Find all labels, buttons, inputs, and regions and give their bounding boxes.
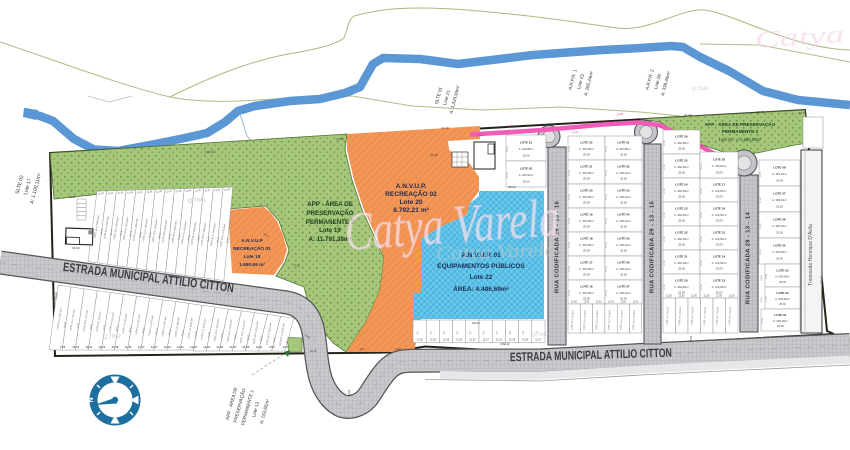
svg-text:A: 300,00m²: A: 300,00m² — [616, 171, 631, 175]
svg-text:12,00: 12,00 — [766, 296, 768, 302]
svg-text:9,51: 9,51 — [359, 347, 365, 351]
svg-text:Lote 22: Lote 22 — [470, 274, 493, 281]
svg-text:12,00: 12,00 — [569, 266, 571, 272]
svg-text:LOTE 19: LOTE 19 — [580, 213, 593, 217]
svg-text:1.690,69 m²: 1.690,69 m² — [239, 262, 265, 268]
svg-text:LOTE 25: LOTE 25 — [675, 159, 688, 163]
svg-text:12,00: 12,00 — [664, 164, 666, 170]
svg-text:LOTE 16: LOTE 16 — [713, 207, 726, 211]
svg-text:12,00: 12,00 — [606, 266, 608, 272]
svg-text:A: 300,00m²: A: 300,00m² — [579, 147, 594, 151]
svg-text:25,00: 25,00 — [678, 219, 685, 223]
svg-text:Q.7041: Q.7041 — [188, 197, 206, 204]
svg-text:25,00: 25,00 — [620, 297, 627, 301]
svg-text:12,50: 12,50 — [716, 296, 722, 298]
svg-text:14,85: 14,85 — [395, 347, 402, 351]
svg-text:269,42: 269,42 — [500, 342, 510, 346]
svg-text:24,00: 24,00 — [761, 296, 763, 302]
svg-text:A: 300,00m²: A: 300,00m² — [772, 250, 787, 254]
svg-text:12,24: 12,24 — [203, 345, 210, 349]
svg-text:LOTE 02: LOTE 02 — [617, 165, 630, 169]
svg-text:APP - ÁREA DE PRESERVAÇÃO: APP - ÁREA DE PRESERVAÇÃO — [705, 121, 776, 127]
svg-text:25,00: 25,00 — [506, 124, 513, 129]
svg-text:LOTE 21: LOTE 21 — [580, 165, 593, 169]
svg-text:LOTE 17: LOTE 17 — [713, 183, 726, 187]
svg-text:A: 300,00m²: A: 300,00m² — [616, 291, 631, 295]
svg-text:A: 300,00m²: A: 300,00m² — [616, 219, 631, 223]
svg-text:12,00: 12,00 — [760, 223, 762, 229]
svg-text:A: 600,00m²: A: 600,00m² — [775, 274, 790, 278]
svg-text:LOTE 01: LOTE 01 — [520, 140, 533, 144]
svg-text:12,00: 12,00 — [664, 236, 666, 242]
svg-text:25,00: 25,00 — [583, 225, 590, 229]
svg-text:12,19: 12,19 — [112, 345, 119, 349]
svg-text:12,00: 12,00 — [606, 194, 608, 200]
svg-text:40,08: 40,08 — [347, 389, 352, 396]
svg-text:12,00: 12,00 — [664, 212, 666, 218]
svg-text:12,50: 12,50 — [583, 302, 589, 304]
svg-text:LOTE 02: LOTE 02 — [520, 166, 533, 170]
svg-text:Q.7040: Q.7040 — [532, 332, 549, 339]
svg-text:LOTE 23: LOTE 23 — [675, 207, 688, 211]
svg-text:A: 300,00m²: A: 300,00m² — [773, 319, 788, 323]
svg-text:12,00: 12,00 — [701, 236, 703, 242]
svg-text:12,00: 12,00 — [760, 197, 762, 203]
svg-text:11,48: 11,48 — [756, 110, 763, 114]
svg-text:12,28: 12,28 — [509, 339, 516, 342]
svg-text:A: 360,00m²: A: 360,00m² — [674, 165, 689, 169]
svg-text:12,00: 12,00 — [606, 290, 608, 296]
svg-text:12,00: 12,00 — [507, 172, 509, 178]
svg-text:25,00: 25,00 — [779, 280, 786, 284]
svg-text:12,50: 12,50 — [620, 302, 626, 304]
svg-text:25,00: 25,00 — [477, 134, 484, 137]
svg-text:LOTE 01: LOTE 01 — [617, 141, 630, 145]
svg-text:12,00: 12,00 — [701, 260, 703, 266]
svg-text:25,00: 25,00 — [716, 243, 723, 247]
svg-text:12,00: 12,00 — [766, 273, 768, 279]
svg-text:LOTE 02: LOTE 02 — [776, 291, 789, 295]
svg-text:Travessão Henrique D'Ávila: Travessão Henrique D'Ávila — [807, 224, 814, 286]
svg-text:12,17: 12,17 — [151, 345, 158, 349]
svg-text:LOTE 03: LOTE 03 — [617, 189, 630, 193]
svg-text:Lote 29 - A:1.696,90m²: Lote 29 - A:1.696,90m² — [719, 137, 762, 142]
svg-text:A: 367,85m²: A: 367,85m² — [616, 147, 631, 151]
svg-text:30,34: 30,34 — [508, 185, 516, 189]
svg-text:A: 300,00m²: A: 300,00m² — [579, 243, 594, 247]
svg-text:12,50: 12,50 — [704, 296, 710, 298]
svg-text:A: 300,00m²: A: 300,00m² — [616, 195, 631, 199]
svg-text:A: 360,00m²: A: 360,00m² — [674, 237, 689, 241]
svg-text:A: 300,00m²: A: 300,00m² — [579, 219, 594, 223]
svg-text:26,13: 26,13 — [310, 349, 317, 353]
svg-text:A: 325,00m²: A: 325,00m² — [519, 173, 534, 177]
svg-text:12,00: 12,00 — [664, 284, 666, 290]
svg-text:12,50: 12,50 — [608, 302, 614, 304]
svg-text:N: N — [88, 397, 95, 402]
svg-text:12,00: 12,00 — [664, 140, 666, 146]
svg-text:LOTE 06: LOTE 06 — [617, 261, 630, 265]
svg-text:A: 360,00m²: A: 360,00m² — [674, 189, 689, 193]
svg-text:12,00: 12,00 — [701, 163, 703, 169]
svg-text:25,00: 25,00 — [777, 324, 784, 328]
svg-text:LOTE 14: LOTE 14 — [713, 255, 726, 259]
svg-text:LOTE 06: LOTE 06 — [773, 217, 786, 221]
svg-text:153,88: 153,88 — [820, 275, 824, 284]
svg-text:12,00: 12,00 — [664, 260, 666, 266]
svg-text:12,29: 12,29 — [522, 339, 529, 342]
svg-text:45,00: 45,00 — [689, 335, 693, 342]
svg-text:LOTE 26: LOTE 26 — [675, 135, 688, 139]
svg-text:A: 300,00m²: A: 300,00m² — [579, 267, 594, 271]
svg-text:12,27: 12,27 — [482, 339, 489, 342]
svg-text:A: 381,93m²: A: 381,93m² — [772, 172, 787, 176]
svg-text:25,00: 25,00 — [678, 243, 685, 247]
svg-text:A: 300,00m²: A: 300,00m² — [579, 291, 594, 295]
svg-text:13,73: 13,73 — [799, 111, 806, 115]
svg-text:12,50: 12,50 — [729, 296, 735, 298]
svg-text:A: 300,00m²: A: 300,00m² — [616, 267, 631, 271]
svg-text:LOTE 20: LOTE 20 — [580, 189, 593, 193]
svg-text:A: 300,00m²: A: 300,00m² — [772, 224, 787, 228]
svg-text:80,44: 80,44 — [472, 321, 480, 325]
svg-text:25,00: 25,00 — [620, 249, 627, 253]
svg-text:25,00: 25,00 — [620, 273, 627, 277]
svg-text:LOTE 22: LOTE 22 — [675, 231, 688, 235]
svg-text:LOTE 08: LOTE 08 — [773, 165, 786, 169]
svg-text:A: 248,85m²: A: 248,85m² — [519, 147, 534, 151]
svg-text:35,38: 35,38 — [69, 195, 76, 199]
svg-text:25,00: 25,00 — [678, 147, 685, 151]
svg-text:12,00: 12,00 — [507, 146, 509, 152]
svg-text:LOTE 05: LOTE 05 — [617, 237, 630, 241]
svg-text:13,41: 13,41 — [229, 345, 236, 349]
svg-text:12,00: 12,00 — [760, 249, 762, 255]
svg-text:12,50: 12,50 — [596, 302, 602, 304]
svg-text:25,00: 25,00 — [583, 153, 590, 157]
svg-text:LOTE 22: LOTE 22 — [580, 141, 593, 145]
svg-text:Lote 19: Lote 19 — [319, 227, 341, 234]
svg-text:12,00: 12,00 — [569, 170, 571, 176]
svg-text:12,00: 12,00 — [701, 188, 703, 194]
svg-text:A: 312,50m²: A: 312,50m² — [712, 285, 727, 289]
svg-text:12,00: 12,00 — [569, 218, 571, 224]
svg-text:23,0: 23,0 — [269, 345, 275, 349]
svg-text:Q.7042: Q.7042 — [103, 334, 121, 341]
svg-text:224,52: 224,52 — [205, 150, 215, 155]
svg-text:A: 360,00m²: A: 360,00m² — [674, 285, 689, 289]
svg-text:12,00: 12,00 — [701, 284, 703, 290]
svg-text:A: 312,50m²: A: 312,50m² — [712, 261, 727, 265]
svg-text:25,00: 25,00 — [678, 291, 685, 295]
svg-text:A: 360,00m²: A: 360,00m² — [674, 213, 689, 217]
svg-text:25,00: 25,00 — [716, 219, 723, 223]
svg-text:9,78: 9,78 — [60, 345, 66, 349]
svg-text:A: 300,00m²: A: 300,00m² — [579, 171, 594, 175]
svg-text:Catya Varela: Catya Varela — [435, 239, 556, 265]
svg-text:25,00: 25,00 — [779, 302, 786, 306]
svg-text:LOTE 04: LOTE 04 — [617, 213, 630, 217]
svg-text:25,00: 25,00 — [583, 273, 590, 277]
svg-text:PERMANENTE 3: PERMANENTE 3 — [722, 129, 758, 134]
svg-text:A: 300,00m²: A: 300,00m² — [579, 195, 594, 199]
svg-text:A: 600,00m²: A: 600,00m² — [775, 297, 790, 301]
svg-text:12,28: 12,28 — [456, 339, 463, 342]
svg-text:12,00: 12,00 — [606, 170, 608, 176]
svg-text:25,00: 25,00 — [583, 249, 590, 253]
svg-text:LOTE 17: LOTE 17 — [580, 261, 593, 265]
svg-text:25,00: 25,00 — [583, 177, 590, 181]
svg-text:A.N.V.U.P.: A.N.V.U.P. — [396, 183, 427, 190]
svg-text:A.N.V.U.P: A.N.V.U.P — [241, 238, 263, 244]
svg-text:LOTE 21: LOTE 21 — [675, 255, 688, 259]
svg-text:14,11: 14,11 — [256, 345, 263, 349]
svg-text:A: 360,00m²: A: 360,00m² — [674, 261, 689, 265]
svg-text:Q.7039: Q.7039 — [692, 86, 709, 93]
svg-text:12,50: 12,50 — [571, 302, 577, 304]
svg-text:LOTE 16: LOTE 16 — [580, 285, 593, 289]
svg-text:12,50: 12,50 — [666, 296, 672, 298]
svg-text:12,00: 12,00 — [762, 318, 764, 324]
svg-text:40,40: 40,40 — [441, 126, 449, 130]
svg-text:25,00: 25,00 — [776, 178, 783, 182]
svg-text:25,00: 25,00 — [583, 297, 590, 301]
svg-text:25,00: 25,00 — [716, 267, 723, 271]
svg-text:12,00: 12,00 — [569, 194, 571, 200]
svg-text:25,00: 25,00 — [716, 170, 723, 174]
svg-text:12,00: 12,00 — [569, 146, 571, 152]
svg-text:25,00: 25,00 — [716, 195, 723, 199]
svg-text:LOTE 24: LOTE 24 — [675, 183, 688, 187]
svg-text:LOTE 07: LOTE 07 — [617, 285, 630, 289]
svg-text:ÁREA: 4.486,69m²: ÁREA: 4.486,69m² — [453, 284, 509, 293]
svg-text:Lote 18: Lote 18 — [244, 254, 261, 260]
svg-text:13,4: 13,4 — [283, 345, 289, 349]
svg-text:25,00: 25,00 — [678, 267, 685, 271]
svg-text:12,50: 12,50 — [633, 302, 639, 304]
svg-text:A: 360,00m²: A: 360,00m² — [674, 141, 689, 145]
svg-text:RUA CODIFICADA 29 - 13 - 15: RUA CODIFICADA 29 - 13 - 15 — [650, 201, 656, 294]
svg-text:12,00: 12,00 — [569, 290, 571, 296]
svg-text:A: 300,00m²: A: 300,00m² — [616, 243, 631, 247]
svg-text:12,20: 12,20 — [190, 345, 197, 349]
svg-text:13,25: 13,25 — [430, 339, 437, 342]
svg-text:62,48: 62,48 — [430, 153, 438, 157]
svg-text:12,00: 12,00 — [606, 146, 608, 152]
svg-text:12,20: 12,20 — [164, 345, 171, 349]
svg-text:A: 325,00m²: A: 325,00m² — [712, 164, 727, 168]
svg-text:12,17: 12,17 — [138, 345, 145, 349]
svg-text:81,52: 81,52 — [72, 246, 80, 250]
svg-text:12,00: 12,00 — [606, 218, 608, 224]
svg-text:12,00: 12,00 — [606, 242, 608, 248]
svg-text:A: 312,50m²: A: 312,50m² — [712, 189, 727, 193]
svg-text:LOTE 03: LOTE 03 — [776, 268, 789, 272]
svg-text:12,19: 12,19 — [72, 345, 79, 349]
svg-text:12,19: 12,19 — [98, 345, 105, 349]
svg-text:23,83: 23,83 — [616, 112, 623, 117]
svg-text:25,00: 25,00 — [776, 204, 783, 208]
svg-text:25,00: 25,00 — [620, 153, 627, 157]
svg-text:12,17: 12,17 — [535, 339, 542, 342]
svg-text:LOTE 05: LOTE 05 — [773, 243, 786, 247]
svg-text:LOTE 15: LOTE 15 — [713, 231, 726, 235]
svg-text:LOTE 01: LOTE 01 — [774, 313, 787, 317]
svg-text:25,00: 25,00 — [776, 256, 783, 260]
svg-text:12,30: 12,30 — [469, 339, 476, 342]
svg-text:LOTE 07: LOTE 07 — [773, 191, 786, 195]
svg-text:LOTE 20: LOTE 20 — [713, 157, 726, 161]
svg-text:12,50: 12,50 — [679, 296, 685, 298]
svg-text:14,39: 14,39 — [336, 137, 344, 141]
svg-text:12,21: 12,21 — [177, 345, 184, 349]
svg-text:25,00: 25,00 — [678, 171, 685, 175]
svg-text:12,18: 12,18 — [125, 345, 132, 349]
svg-text:12,31: 12,31 — [496, 339, 503, 342]
svg-text:25,00: 25,00 — [620, 201, 627, 205]
svg-text:LOTE 20: LOTE 20 — [675, 279, 688, 283]
svg-text:12,00: 12,00 — [760, 171, 762, 177]
svg-text:12,19: 12,19 — [85, 345, 92, 349]
svg-text:LOTE 18: LOTE 18 — [580, 237, 593, 241]
svg-text:A: 312,50m²: A: 312,50m² — [712, 237, 727, 241]
svg-text:24,00: 24,00 — [761, 274, 763, 280]
svg-text:12,00: 12,00 — [569, 242, 571, 248]
svg-text:25,00: 25,00 — [620, 177, 627, 181]
svg-text:25,00: 25,00 — [523, 153, 530, 157]
svg-text:25,00: 25,00 — [776, 230, 783, 234]
svg-text:25,00: 25,00 — [523, 179, 530, 183]
svg-text:11,28: 11,28 — [417, 339, 424, 342]
svg-text:25,00: 25,00 — [583, 201, 590, 205]
svg-text:21,06: 21,06 — [243, 345, 250, 349]
svg-text:25,00: 25,00 — [678, 195, 685, 199]
svg-text:61,40: 61,40 — [684, 113, 692, 117]
svg-text:12,00: 12,00 — [701, 212, 703, 218]
svg-text:12,00: 12,00 — [664, 188, 666, 194]
svg-text:12,50: 12,50 — [691, 296, 697, 298]
svg-text:12,25: 12,25 — [443, 339, 450, 342]
svg-text:A: 312,50m²: A: 312,50m² — [712, 213, 727, 217]
svg-text:LOTE 13: LOTE 13 — [713, 279, 726, 283]
svg-text:12,34: 12,34 — [216, 345, 223, 349]
svg-text:25,00: 25,00 — [620, 225, 627, 229]
svg-text:25,00: 25,00 — [716, 291, 723, 295]
svg-text:RUA CODIFICADA 29 - 13 - 14: RUA CODIFICADA 29 - 13 - 14 — [746, 212, 752, 305]
svg-text:A: 300,00m²: A: 300,00m² — [772, 198, 787, 202]
svg-text:RECREAÇÃO 01: RECREAÇÃO 01 — [233, 245, 271, 252]
